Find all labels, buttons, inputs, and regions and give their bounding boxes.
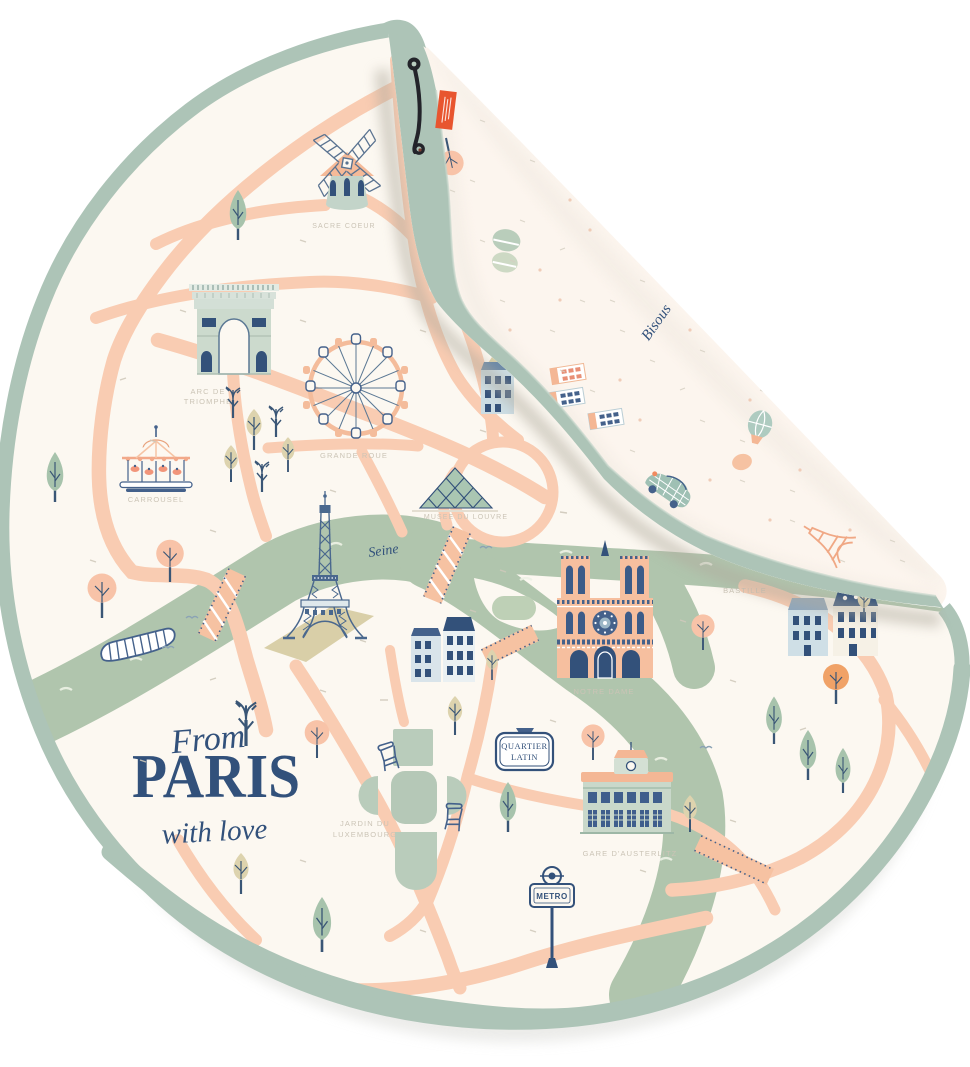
svg-text:GRANDE ROUE: GRANDE ROUE bbox=[320, 451, 388, 460]
svg-text:ARC DE: ARC DE bbox=[191, 387, 226, 396]
svg-text:PARIS: PARIS bbox=[132, 743, 300, 811]
svg-text:CARROUSEL: CARROUSEL bbox=[128, 495, 185, 504]
svg-text:QUARTIER: QUARTIER bbox=[501, 741, 547, 751]
svg-text:MUSEE DU LOUVRE: MUSEE DU LOUVRE bbox=[424, 514, 508, 521]
svg-text:METRO: METRO bbox=[536, 892, 567, 901]
svg-text:GARE D'AUSTERLITZ: GARE D'AUSTERLITZ bbox=[583, 849, 678, 858]
svg-text:NOTRE DAME: NOTRE DAME bbox=[573, 687, 634, 696]
svg-text:TRIOMPHE: TRIOMPHE bbox=[184, 397, 232, 406]
svg-text:LATIN: LATIN bbox=[511, 752, 538, 762]
svg-text:JARDIN DU: JARDIN DU bbox=[340, 819, 390, 828]
svg-text:LUXEMBOURG: LUXEMBOURG bbox=[333, 830, 397, 839]
svg-text:with love: with love bbox=[161, 813, 268, 850]
svg-text:SACRE COEUR: SACRE COEUR bbox=[312, 223, 375, 230]
